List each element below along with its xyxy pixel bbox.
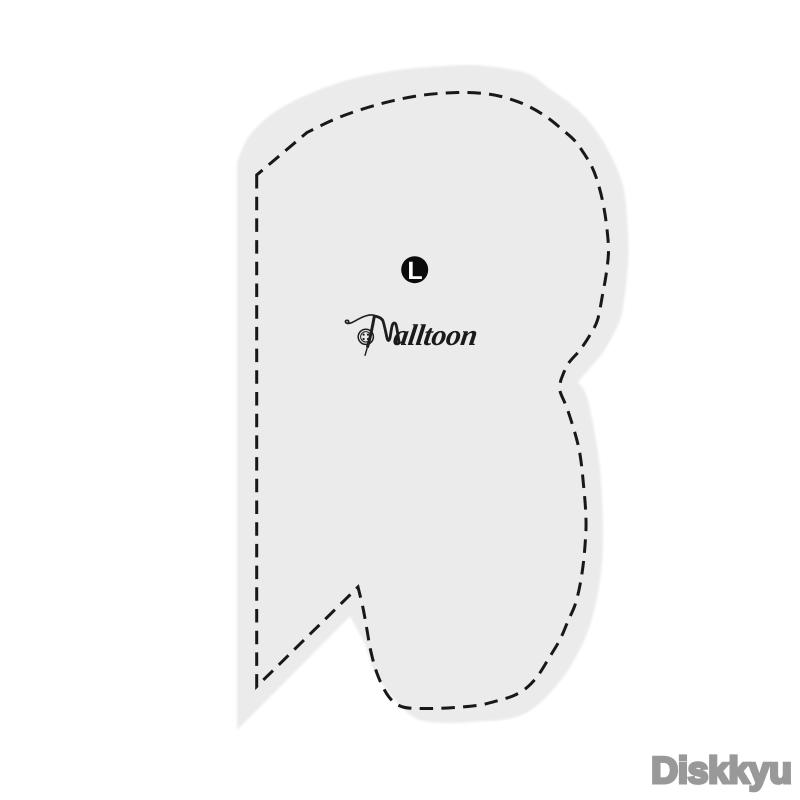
svg-text:L: L [407, 257, 422, 285]
svg-text:Diskkyu: Diskkyu [651, 749, 791, 791]
svg-text:alltoon: alltoon [392, 319, 480, 352]
